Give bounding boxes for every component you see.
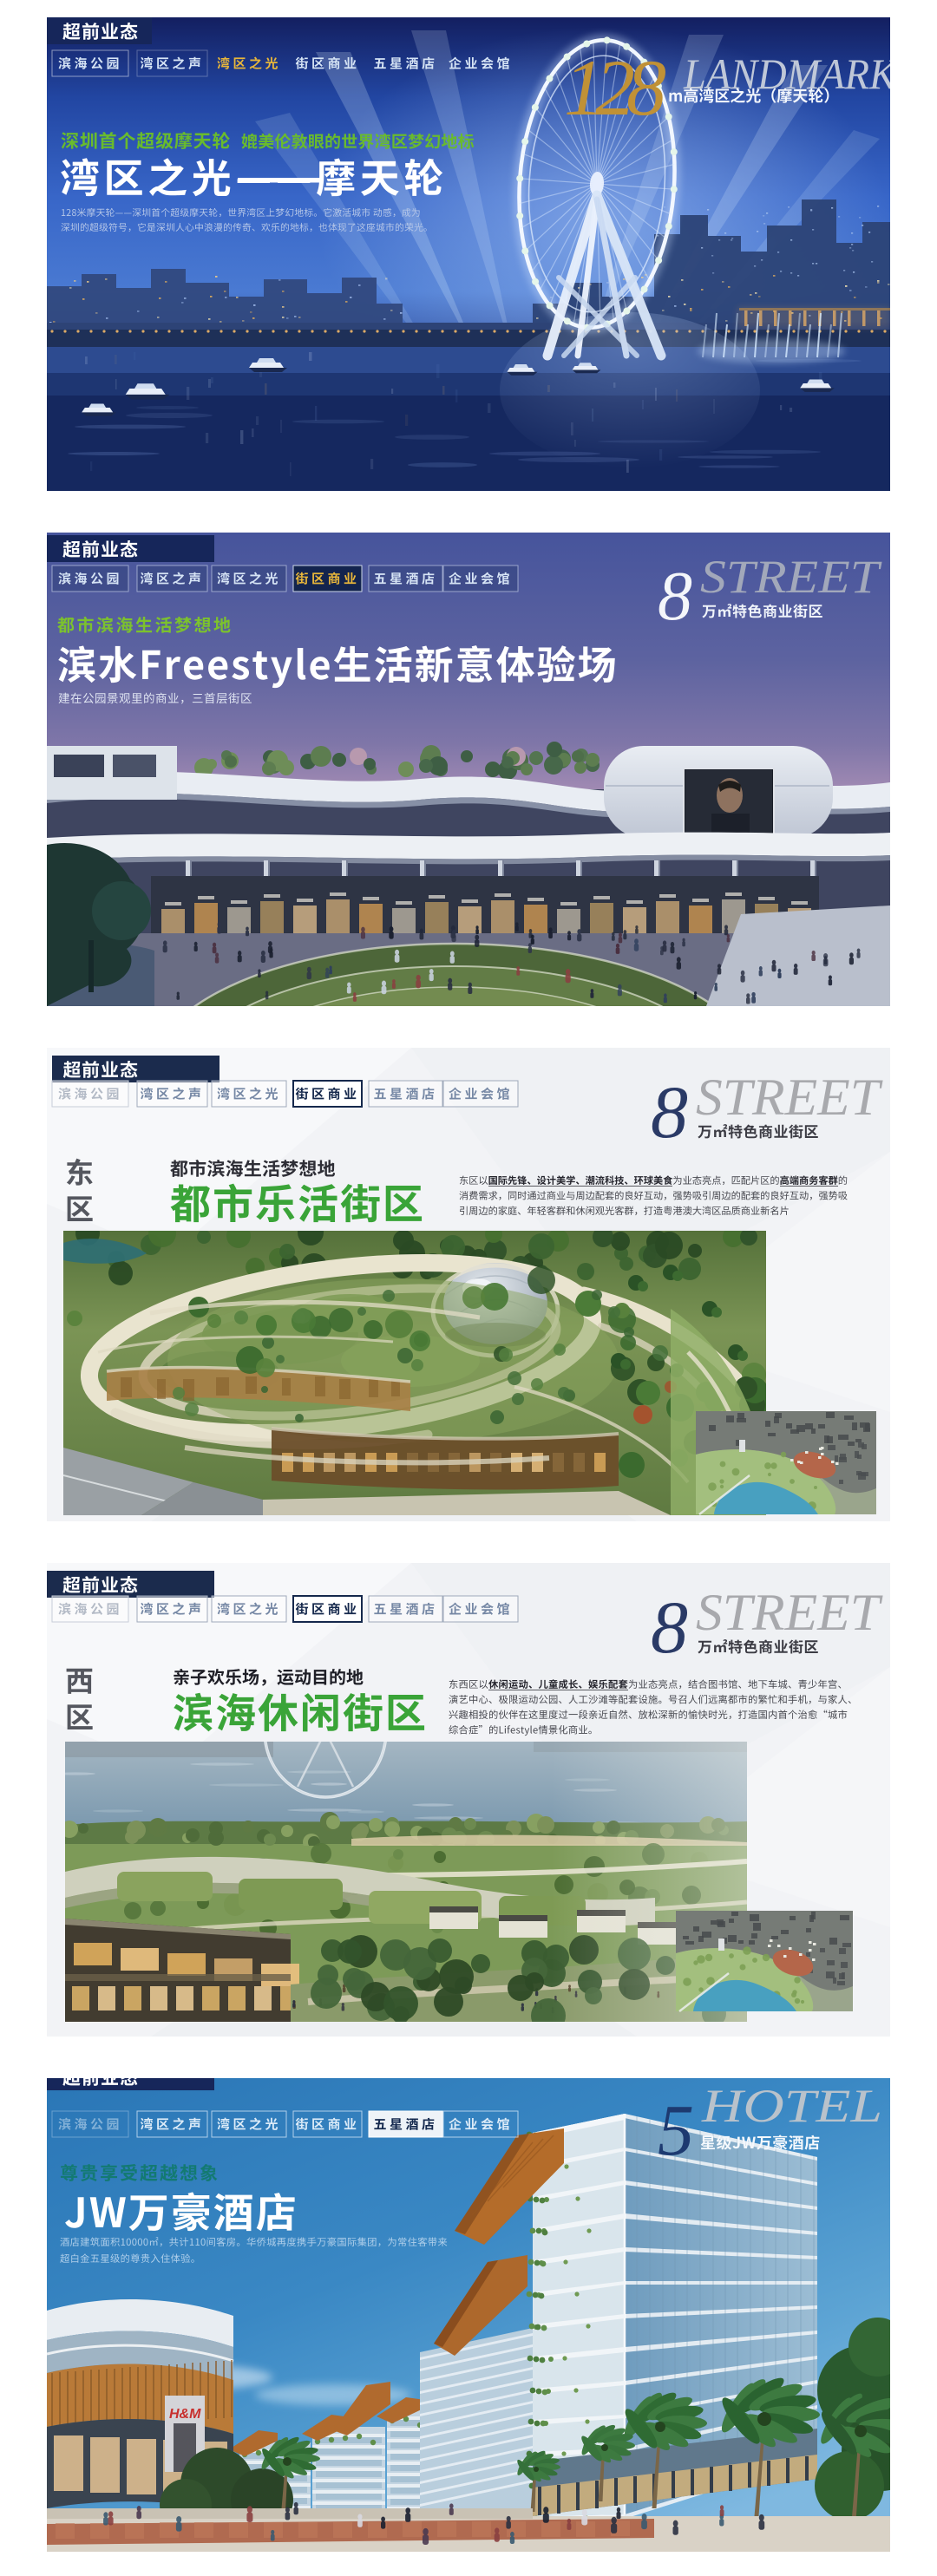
svg-text:128: 128 — [564, 43, 666, 132]
svg-text:STREET: STREET — [700, 551, 882, 603]
svg-text:5: 5 — [658, 2090, 694, 2171]
svg-text:8: 8 — [658, 559, 692, 635]
svg-text:8: 8 — [651, 1585, 688, 1669]
svg-text:8: 8 — [651, 1070, 688, 1154]
svg-text:STREET: STREET — [696, 1069, 883, 1126]
svg-text:H&M: H&M — [169, 2407, 201, 2422]
svg-text:STREET: STREET — [696, 1584, 883, 1641]
svg-text:HOTEL: HOTEL — [701, 2080, 882, 2132]
